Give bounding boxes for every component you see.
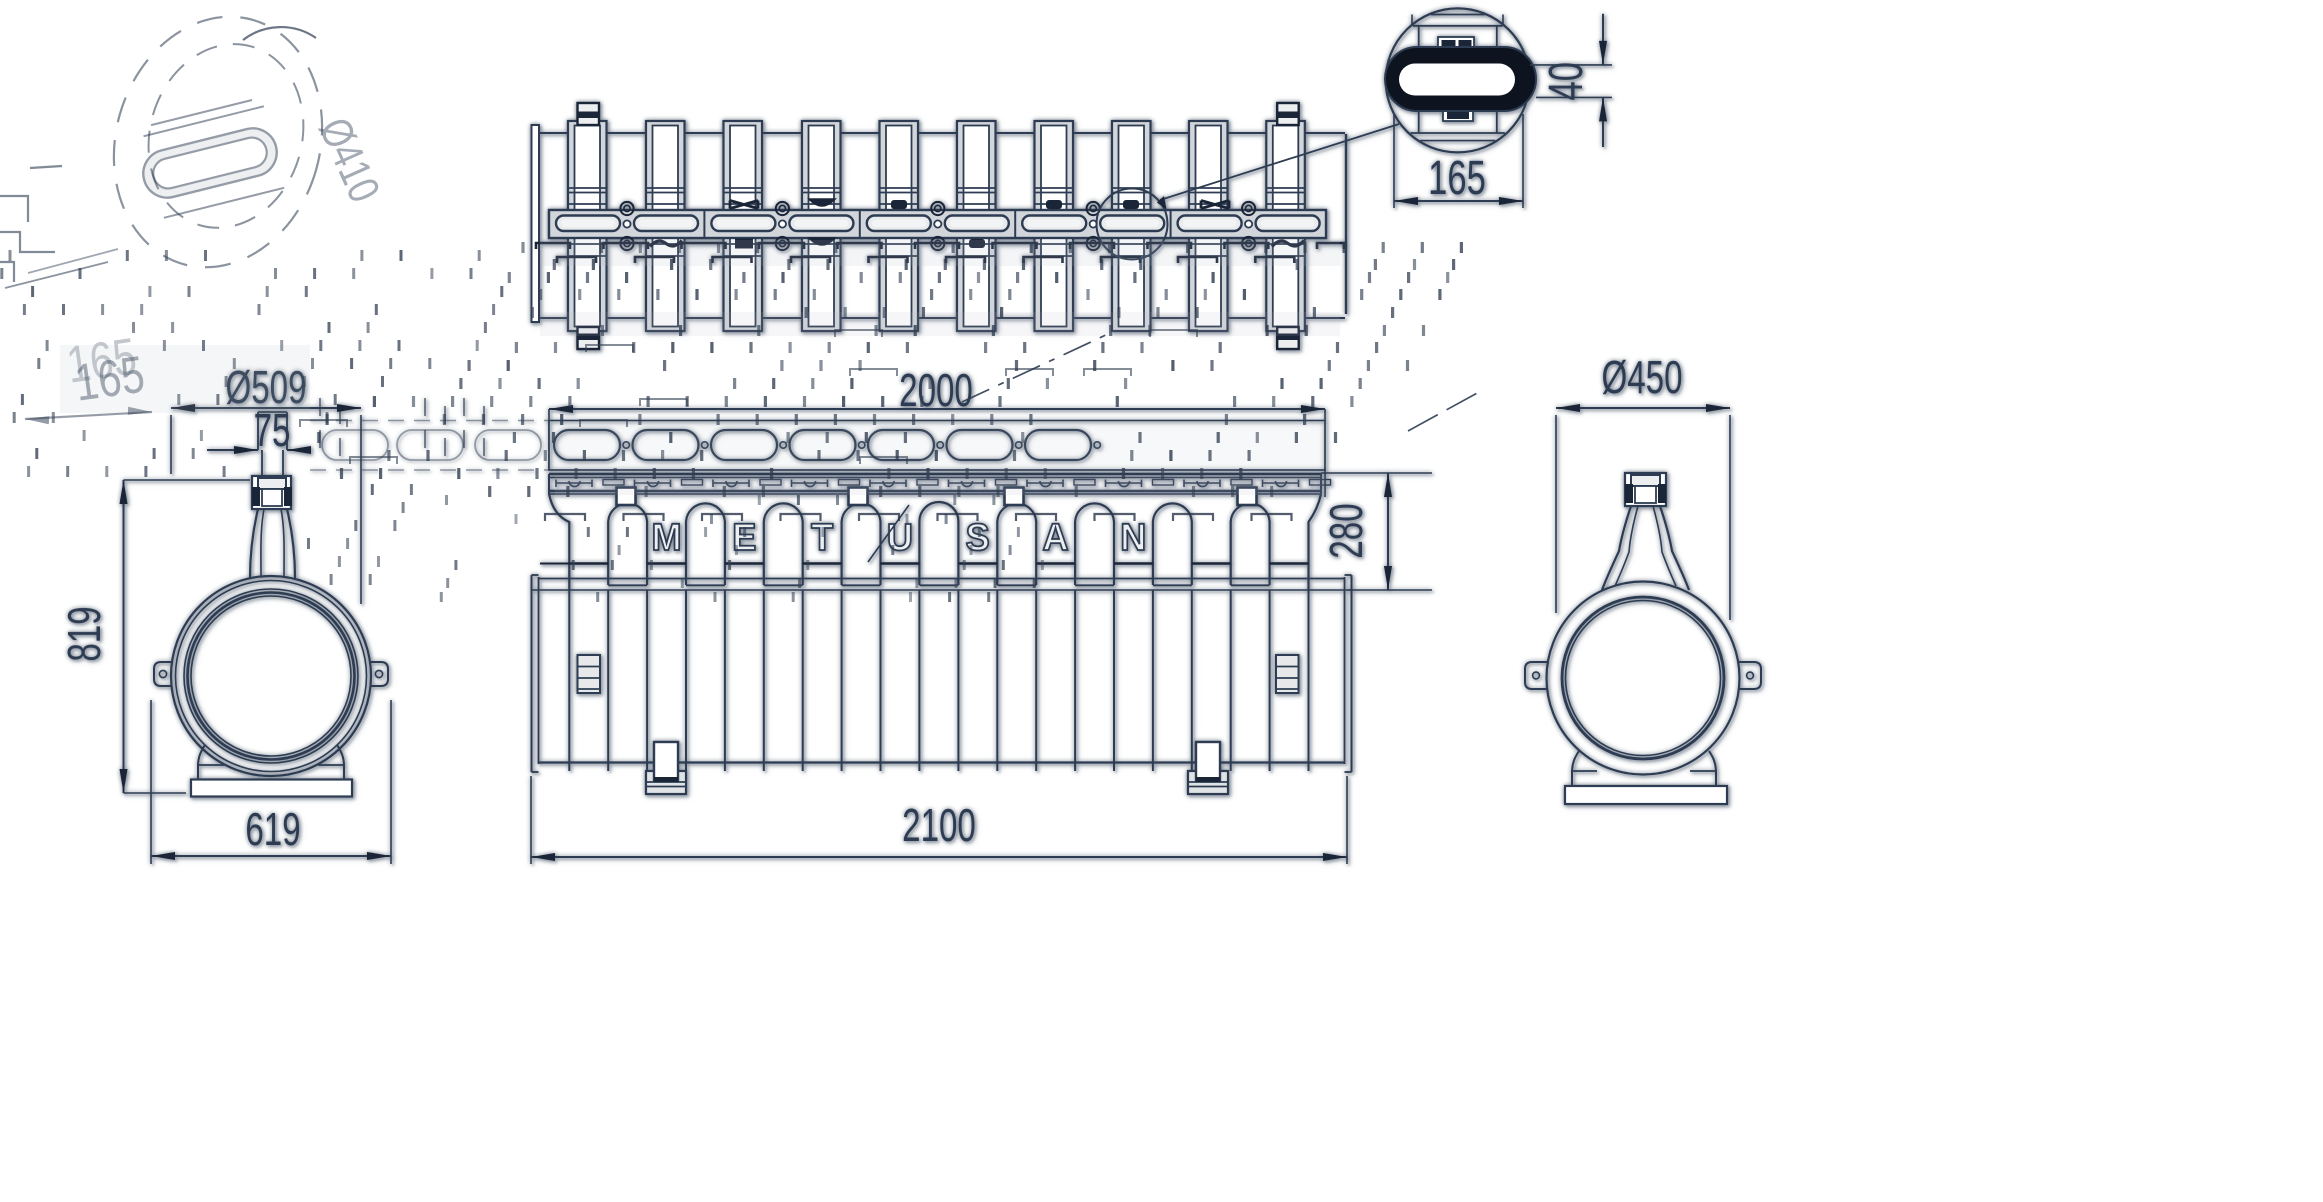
svg-text:75: 75	[254, 406, 291, 456]
svg-text:819: 819	[60, 606, 110, 661]
svg-text:M: M	[651, 515, 681, 558]
svg-text:40: 40	[1538, 62, 1592, 100]
svg-text:2100: 2100	[902, 801, 976, 851]
svg-text:2000: 2000	[899, 366, 973, 416]
svg-text:Ø450: Ø450	[1601, 353, 1682, 403]
svg-text:619: 619	[245, 805, 300, 855]
svg-text:N: N	[1120, 515, 1146, 558]
svg-text:280: 280	[1322, 503, 1372, 558]
svg-text:U: U	[887, 515, 913, 558]
svg-text:165: 165	[1428, 150, 1486, 204]
svg-text:A: A	[1042, 515, 1068, 558]
svg-text:S: S	[966, 515, 990, 558]
